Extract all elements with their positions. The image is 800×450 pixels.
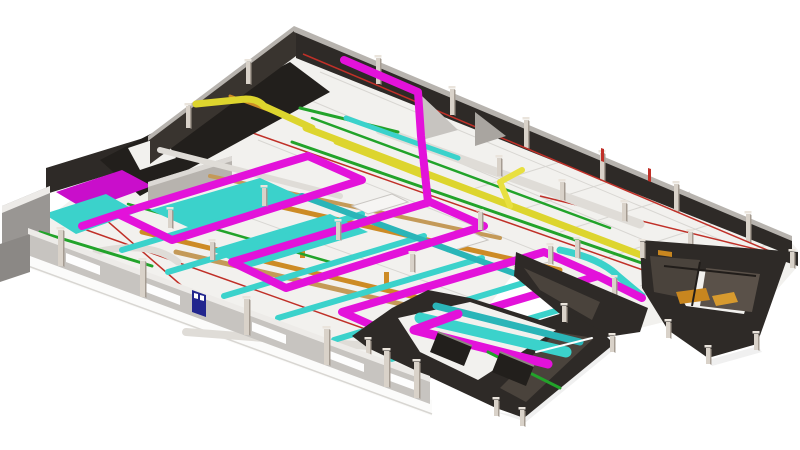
floor-column-9-shaft [497,158,501,176]
floor-column-5-shade [552,246,554,265]
arm-pilaster-1-shaft [246,62,250,84]
right-wing-post-4-shaft [754,334,758,350]
floor-column-4-shade [482,212,484,231]
floor-column-8-cap [167,207,174,210]
wing-post-5-cap [519,407,526,410]
right-wing-post-3-shade [710,348,712,365]
front-wall-post-4-cap [323,326,331,329]
wall-red-accent-2 [648,168,651,182]
wing-post-4-shaft [562,306,566,322]
floor-column-9-cap [496,155,503,158]
back-wall-pilaster-2-shade [454,89,456,116]
floor-column-8-shade [172,210,174,229]
arm-pilaster-1-cap [245,59,252,62]
back-wall-pilaster-6-shade [750,214,752,243]
floor-column-3-shaft [410,254,414,272]
wing-post-4-cap [561,303,568,306]
wall-red-accent-1 [601,148,604,162]
right-wing-post-1-shaft [640,242,644,258]
front-wall-post-4-shaft [324,329,329,365]
floor-column-11-shade [626,203,628,222]
wing-post-2-shaft [494,400,498,416]
right-wing-post-1-cap [639,239,646,242]
floor-column-7-shaft [210,242,214,260]
floor-column-4-cap [477,209,484,212]
floor-column-10-cap [559,179,566,182]
door-window-1 [194,293,198,299]
back-wall-pilaster-5-shade [678,184,680,213]
wing-post-2-shade [498,400,500,417]
front-wall-post-5-shaft [384,351,389,387]
floor-column-14-shade [579,240,581,259]
floor-column-7-cap [209,239,216,242]
right-wing-post-3-shaft [706,348,710,364]
back-wall-pilaster-5-cap [673,181,680,184]
back-wall-pilaster-6-cap [745,211,752,214]
floor-column-14-shaft [575,240,579,258]
floor-column-7-shade [214,242,216,261]
wing-post-2-cap [493,397,500,400]
front-wall-post-6-shaft [414,362,419,398]
bim-model-viewport[interactable] [0,0,800,450]
floor-column-5-cap [547,243,554,246]
wing-post-3-shade [614,336,616,353]
back-wall-pilaster-3-shaft [524,120,528,148]
wing-post-5-shade [524,410,526,427]
front-wall-post-1-cap [57,227,65,230]
front-wall-post-2-shaft [140,261,145,297]
right-wing-post-4-shade [758,334,760,351]
floor-column-6-shade [616,278,618,297]
arm-pilaster-2-shade [190,106,192,129]
front-wall-post-5-cap [383,348,391,351]
wing-post-3-shaft [610,336,614,352]
floor-column-2-shaft [336,222,340,240]
floor-column-1-shade [266,188,268,207]
floor-column-14-cap [574,237,581,240]
floor-column-2-shade [340,222,342,241]
floor-column-10-shade [564,182,566,201]
wing-post-1-cap [365,337,372,340]
model-svg[interactable] [0,0,800,450]
right-wing-post-5-shade [794,252,796,269]
front-wall-post-6-cap [413,359,421,362]
front-wall-post-6-shade [419,362,421,399]
back-wall-pilaster-2-shaft [450,89,454,115]
right-wing-post-1-shade [644,242,646,259]
floor-column-4-shaft [478,212,482,230]
floor-column-8-shaft [168,210,172,228]
floor-column-9-shade [501,158,503,177]
front-wall-post-3-shade [249,299,251,336]
wing-post-3-cap [609,333,616,336]
floor-column-11-shaft [622,203,626,221]
wing-post-5-shaft [520,410,524,426]
back-wall-pilaster-5-shaft [674,184,678,212]
floor-column-6-cap [611,275,618,278]
floor-column-3-shade [414,254,416,273]
floor-column-11-cap [621,200,628,203]
back-wall-pilaster-6-shaft [746,214,750,242]
arm-pilaster-2-shaft [186,106,190,128]
front-wall-post-3-shaft [244,299,249,335]
front-wall-post-4-shade [329,329,331,366]
right-wing-post-5-cap [789,249,796,252]
back-wall-pilaster-2-cap [449,86,456,89]
right-wing-post-3-cap [705,345,712,348]
right-wing-post-2-cap [665,319,672,322]
front-wall-post-5-shade [389,351,391,388]
front-wall-post-3-cap [243,296,251,299]
back-wall-pilaster-3-shade [528,120,530,149]
front-wall-post-1-shade [63,230,65,267]
back-wall-pilaster-1-cap [375,55,382,58]
right-wing-post-4-cap [753,331,760,334]
floor-column-2-cap [335,219,342,222]
back-wall-pilaster-4-shade [604,153,606,182]
arm-pilaster-2-cap [185,103,192,106]
front-wall-post-2-shade [145,261,147,298]
back-wall-pilaster-3-cap [523,117,530,120]
floor-column-10-shaft [560,182,564,200]
right-wing-post-2-shade [670,322,672,339]
floor-column-12-cap [687,229,694,232]
right-wing-post-5-shaft [790,252,794,268]
floor-column-5-shaft [548,246,552,264]
floor-column-1-shaft [262,188,266,206]
floor-column-3-cap [409,251,416,254]
floor-column-1-cap [261,185,268,188]
front-wall-post-1-shaft [58,230,63,266]
door-window-2 [200,295,204,301]
right-wing-post-2-shaft [666,322,670,338]
front-wall-post-2-cap [139,258,147,261]
arm-pilaster-1-shade [250,62,252,85]
wing-post-4-shade [566,306,568,323]
